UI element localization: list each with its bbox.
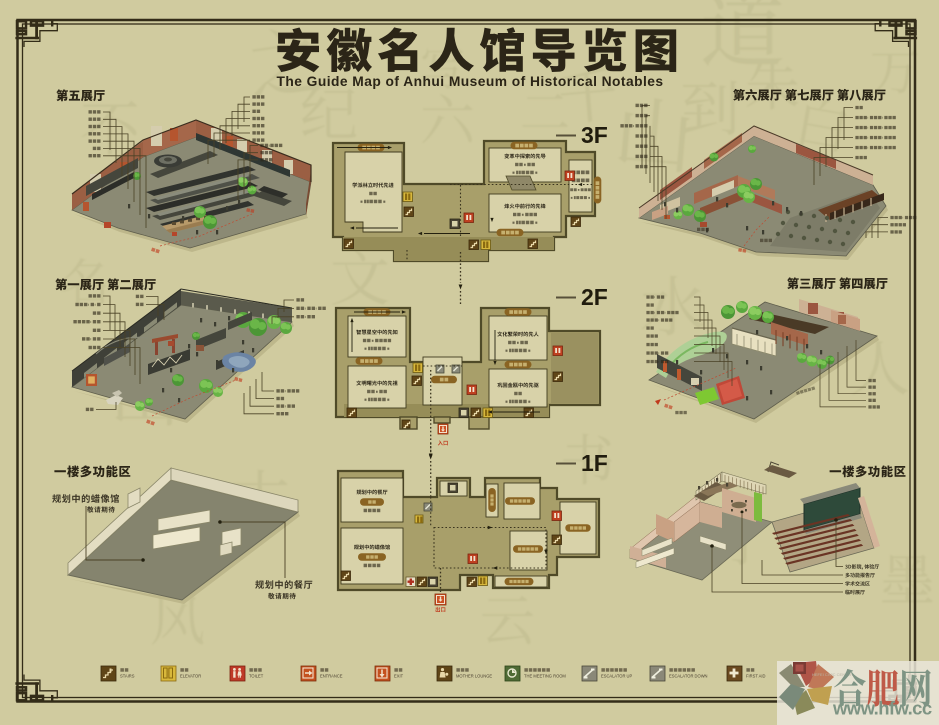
svg-text:FIRST AID: FIRST AID <box>746 674 766 679</box>
svg-text:ELEVATOR: ELEVATOR <box>180 674 201 679</box>
svg-text:2F: 2F <box>581 284 608 310</box>
svg-text:EXIT: EXIT <box>394 674 404 679</box>
svg-text:The Guide Map of Anhui Museum: The Guide Map of Anhui Museum of Histori… <box>277 74 664 89</box>
svg-text:3F: 3F <box>581 122 608 148</box>
svg-text:THE MEETING ROOM: THE MEETING ROOM <box>524 674 566 679</box>
svg-text:TOILET: TOILET <box>249 674 264 679</box>
svg-text:ENTRANCE: ENTRANCE <box>320 674 343 679</box>
svg-text:1F: 1F <box>581 450 608 476</box>
svg-text:ESCALATOR DOWN: ESCALATOR DOWN <box>669 674 708 679</box>
svg-text:MOTHER LOUNGE: MOTHER LOUNGE <box>456 674 492 679</box>
svg-text:www.hfw.cc: www.hfw.cc <box>832 698 932 719</box>
svg-text:ESCALATOR UP: ESCALATOR UP <box>601 674 633 679</box>
svg-text:STAIRS: STAIRS <box>120 674 135 679</box>
